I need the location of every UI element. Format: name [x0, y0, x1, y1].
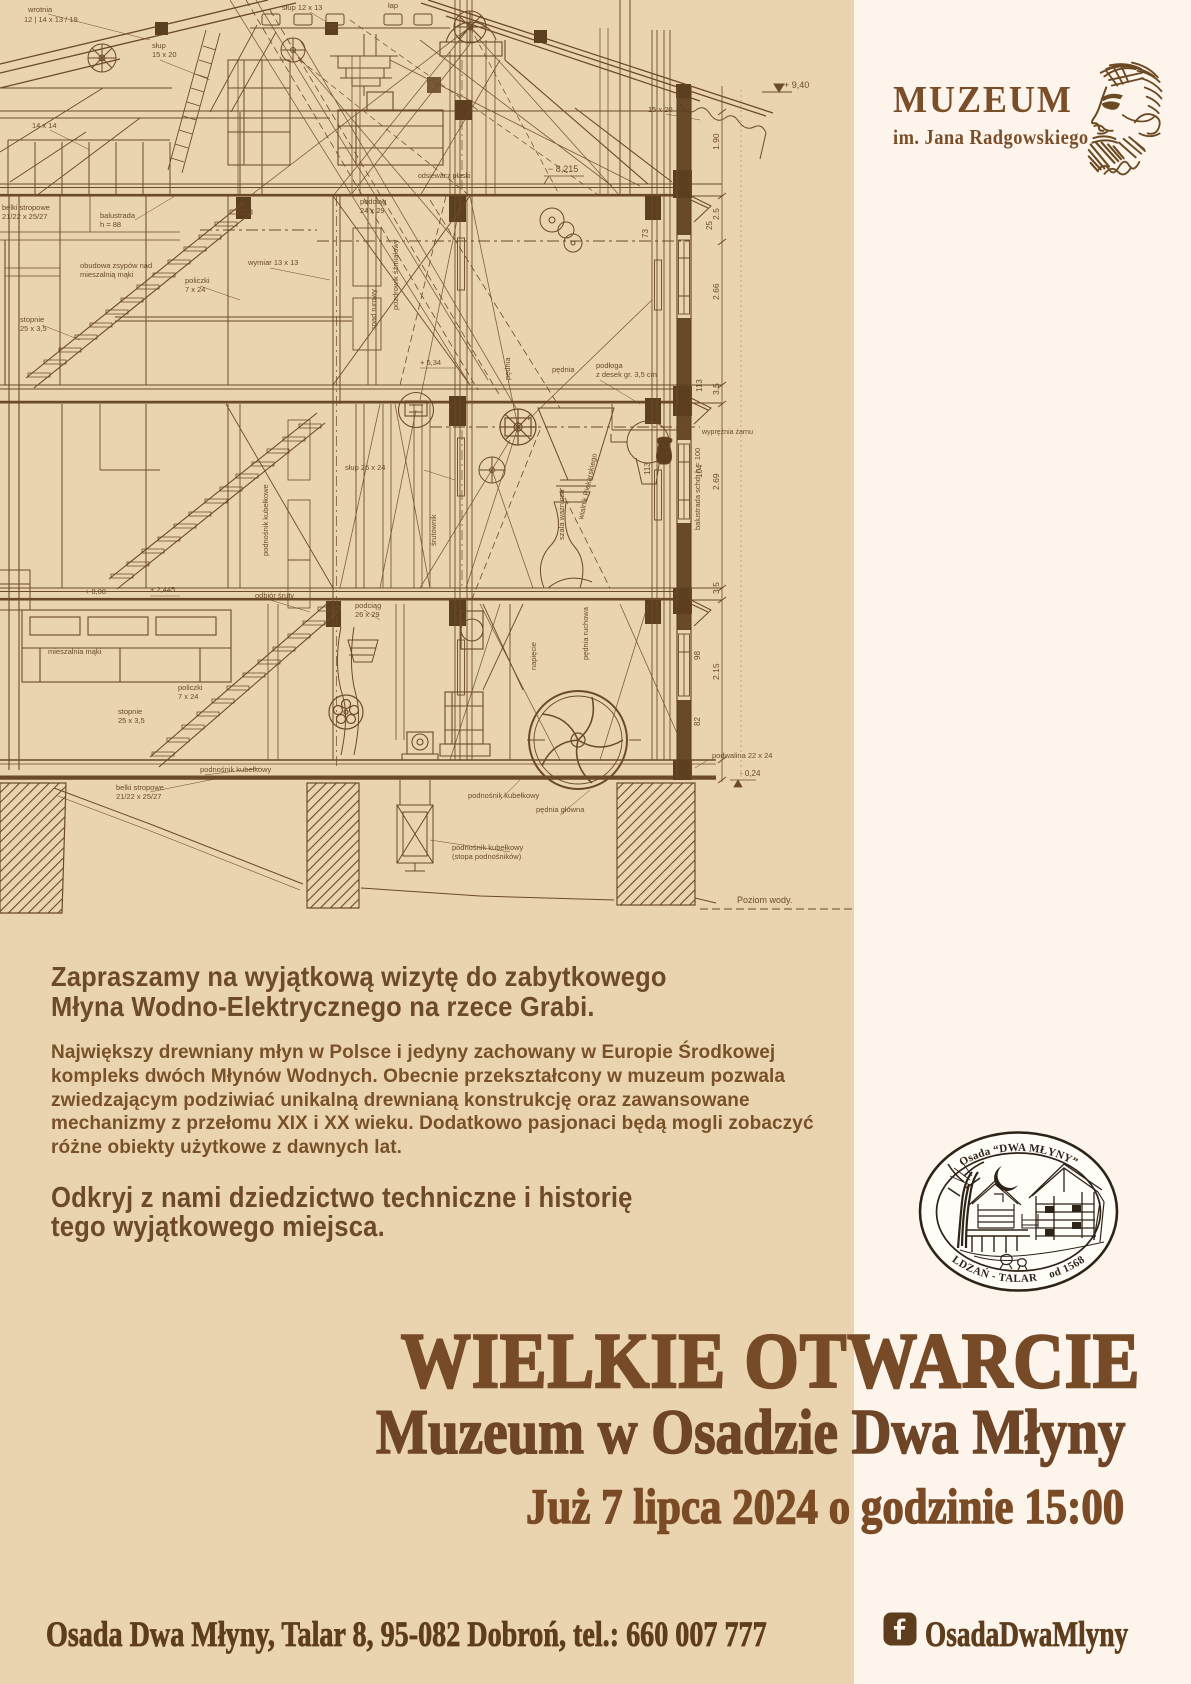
svg-text:podnośnik kubełkowe: podnośnik kubełkowe	[261, 484, 270, 556]
svg-text:policzki: policzki	[185, 276, 210, 285]
svg-text:podnośnik kubełkowy: podnośnik kubełkowy	[200, 765, 272, 774]
svg-text:pędnia: pędnia	[552, 365, 575, 374]
svg-text:odbiór śruty: odbiór śruty	[255, 591, 294, 600]
svg-text:2.69: 2.69	[711, 473, 721, 490]
svg-text:Poziom wody.: Poziom wody.	[737, 895, 792, 905]
svg-text:podciąg: podciąg	[360, 197, 386, 206]
svg-text:2.15: 2.15	[711, 663, 721, 680]
svg-text:113: 113	[643, 462, 652, 475]
svg-text:mieszalnia mąki: mieszalnia mąki	[48, 647, 102, 656]
svg-text:82: 82	[693, 717, 702, 726]
svg-text:śrutownik: śrutownik	[429, 514, 438, 546]
svg-text:+ 5,34: + 5,34	[420, 358, 441, 367]
svg-text:wrotnia: wrotnia	[27, 5, 53, 14]
svg-text:3.5: 3.5	[711, 582, 721, 594]
svg-text:słup: słup	[152, 41, 166, 50]
svg-text:2.66: 2.66	[711, 283, 721, 300]
svg-text:21/22 x 25/27: 21/22 x 25/27	[2, 212, 47, 221]
svg-text:− 8,215: − 8,215	[548, 164, 578, 174]
svg-text:7 x 24: 7 x 24	[185, 285, 205, 294]
svg-text:98: 98	[693, 651, 702, 660]
svg-text:7 x 24: 7 x 24	[178, 692, 198, 701]
svg-text:obudowa zsypów nad: obudowa zsypów nad	[80, 261, 152, 270]
svg-text:łap: łap	[388, 1, 398, 10]
svg-text:napięcie: napięcie	[529, 642, 538, 670]
svg-text:+ 9,40: + 9,40	[784, 80, 809, 90]
svg-text:h = 88: h = 88	[100, 220, 121, 229]
svg-text:słup 12 x 13: słup 12 x 13	[282, 3, 322, 12]
svg-text:24 x 29: 24 x 29	[360, 206, 385, 215]
svg-text:+ 2,445: + 2,445	[150, 585, 175, 594]
svg-text:balustrada: balustrada	[100, 211, 136, 220]
svg-text:113: 113	[695, 379, 704, 392]
svg-text:odsiewacz płaski: odsiewacz płaski	[418, 173, 471, 180]
svg-text:podciąg: podciąg	[355, 601, 381, 610]
svg-text:podnośnik kubełkowy: podnośnik kubełkowy	[468, 791, 540, 800]
svg-text:wymiar 13 x 13: wymiar 13 x 13	[247, 258, 298, 267]
svg-text:1.90: 1.90	[711, 133, 721, 150]
svg-text:balustrada schd. h = 100: balustrada schd. h = 100	[693, 448, 702, 530]
svg-text:pędnia główna: pędnia główna	[536, 805, 585, 814]
svg-text:spad rurowy: spad rurowy	[369, 289, 378, 330]
svg-text:policzki: policzki	[178, 683, 203, 692]
svg-text:(stopa podnośników): (stopa podnośników)	[452, 852, 522, 861]
svg-text:2.5: 2.5	[711, 208, 721, 220]
svg-text:stopnie: stopnie	[20, 315, 44, 324]
svg-text:podwalina 22 x 24: podwalina 22 x 24	[712, 751, 772, 760]
svg-text:z desek gr. 3,5 cm: z desek gr. 3,5 cm	[596, 370, 657, 379]
svg-text:pędnia: pędnia	[503, 357, 512, 380]
svg-text:73: 73	[641, 229, 650, 238]
svg-text:słup 26 x 24: słup 26 x 24	[345, 463, 385, 472]
svg-text:wialnik Piekarskiego: wialnik Piekarskiego	[576, 452, 599, 521]
svg-text:wyprężnia żarnu: wyprężnia żarnu	[701, 429, 753, 436]
svg-text:25: 25	[705, 221, 714, 230]
svg-text:podłoga: podłoga	[596, 361, 624, 370]
svg-text:mieszalnią mąki: mieszalnią mąki	[80, 270, 134, 279]
svg-text:- 0,24: - 0,24	[740, 769, 761, 778]
svg-text:14 x 14: 14 x 14	[32, 121, 57, 130]
svg-text:pędnia ruchowa: pędnia ruchowa	[581, 606, 590, 660]
svg-text:stopnie: stopnie	[118, 707, 142, 716]
svg-text:+ 0,00: + 0,00	[85, 587, 106, 596]
svg-text:21/22 x 25/27: 21/22 x 25/27	[116, 792, 161, 801]
svg-text:podnośnik kubełkowy: podnośnik kubełkowy	[452, 843, 524, 852]
svg-text:15 x 20: 15 x 20	[152, 50, 177, 59]
svg-text:szala ważnicza: szala ważnicza	[557, 489, 566, 540]
svg-text:belki stropowe: belki stropowe	[2, 203, 50, 212]
svg-text:104: 104	[695, 464, 704, 478]
svg-text:15 x 20: 15 x 20	[648, 105, 673, 114]
svg-text:25 x 3,5: 25 x 3,5	[118, 716, 145, 725]
svg-text:3.5: 3.5	[711, 383, 721, 395]
